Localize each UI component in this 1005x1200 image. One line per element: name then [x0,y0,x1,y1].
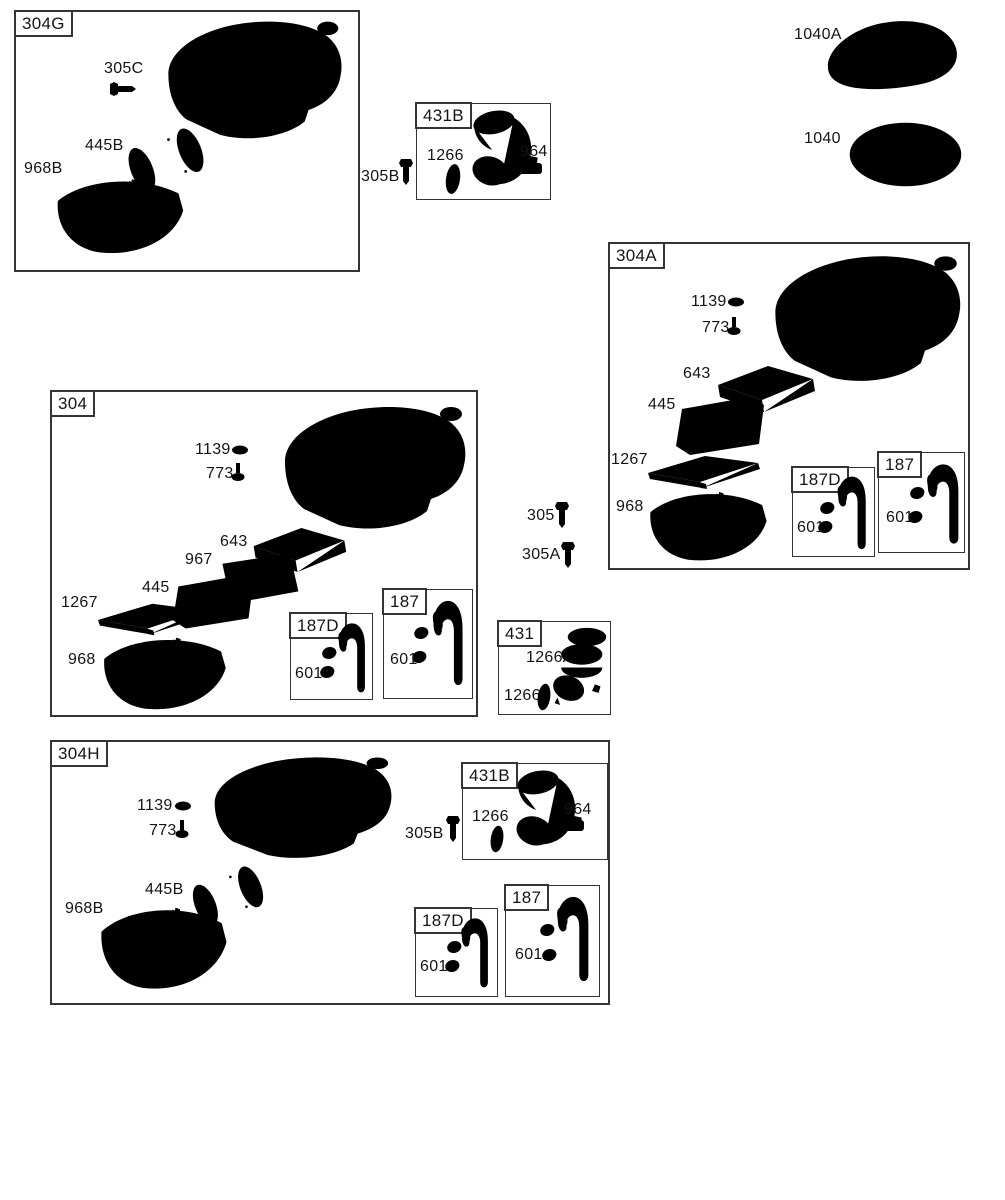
air-cleaner-cover-art [93,890,235,994]
carburetor-spacer-art [548,638,608,712]
o-ring-icon [442,161,464,197]
part-callout-305B: 305B [405,825,444,843]
part-callout-773: 773 [149,822,177,840]
part-callout-601: 601 [797,519,825,537]
breather-tube-art [922,456,962,550]
air-cleaner-cover-art [48,163,193,258]
hose-clamp-icon [445,938,469,956]
hose-clamp-icon [908,484,932,502]
part-callout-601: 601 [420,958,448,976]
group-tag-187-L: 187 [382,588,427,615]
retainer-ring-art [843,116,968,193]
group-tag-187-H: 187 [504,884,549,911]
washer-icon [230,444,250,456]
part-callout-601: 601 [515,946,543,964]
group-tag-304H: 304H [50,740,108,767]
blower-housing-art [200,750,396,874]
group-tag-187-A: 187 [877,451,922,478]
blower-housing-gasket-art [820,12,965,102]
hose-clamp-icon [818,499,842,517]
parts-diagram-page: 304G 305C 445B 968B 431B 1266 964 305B 1… [0,0,1005,1200]
air-cleaner-cover-art [91,622,239,714]
group-tag-304: 304 [50,390,95,417]
part-callout-305C: 305C [104,60,143,78]
breather-tube-art [428,592,466,692]
part-callout-601: 601 [886,509,914,527]
hose-clamp-icon [540,946,564,964]
part-callout-1040: 1040 [804,130,841,148]
o-ring-icon [487,823,507,855]
part-callout-1139: 1139 [691,293,727,311]
part-callout-967: 967 [185,551,213,569]
part-callout-1139: 1139 [195,441,231,459]
part-callout-601: 601 [295,665,323,683]
plug-screw-icon [174,818,190,840]
hose-clamp-icon [538,921,562,939]
plug-screw-icon [230,461,246,483]
plug-screw-icon [726,315,742,337]
group-tag-304G: 304G [14,10,73,37]
hex-screw-icon [553,500,571,530]
spacer-sleeve-icon [514,160,544,176]
air-cleaner-cover-art [636,477,781,565]
washer-icon [173,800,193,812]
part-callout-445: 445 [142,579,170,597]
hose-clamp-icon [320,644,344,662]
part-callout-1139: 1139 [137,797,173,815]
washer-icon [726,296,746,308]
part-callout-964: 964 [520,143,548,161]
group-tag-304A: 304A [608,242,665,269]
o-ring-icon [534,681,554,713]
hex-screw-icon [397,157,415,187]
hose-clamp-icon [412,624,436,642]
part-callout-601: 601 [390,651,418,669]
group-tag-431: 431 [497,620,542,647]
part-callout-643: 643 [683,365,711,383]
part-callout-305: 305 [527,507,555,525]
part-callout-305B: 305B [361,168,400,186]
hex-screw-icon [108,80,138,98]
hex-screw-icon [444,814,462,844]
hex-screw-icon [559,540,577,570]
part-callout-305A: 305A [522,546,561,564]
spacer-sleeve-icon [556,817,586,833]
